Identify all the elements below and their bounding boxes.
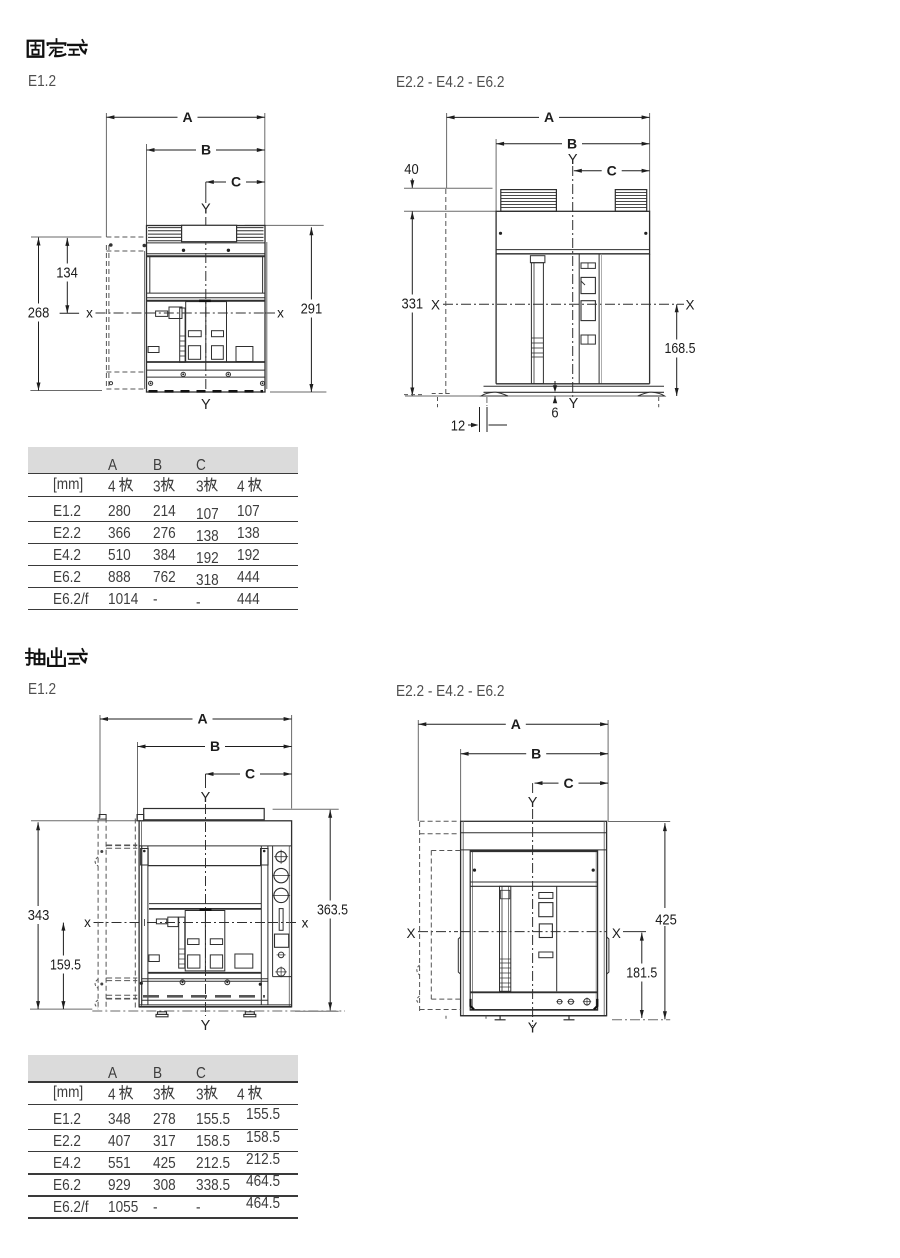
svg-text:40: 40 [404,162,418,178]
svg-text:A: A [544,109,554,125]
svg-text:x: x [86,306,93,321]
svg-text:B: B [567,136,577,152]
svg-text:C: C [245,766,255,782]
svg-text:331: 331 [402,297,424,313]
svg-text:x: x [277,306,284,321]
svg-text:C: C [563,775,573,791]
svg-text:6: 6 [551,406,558,422]
svg-text:Y: Y [568,152,578,168]
svg-text:343: 343 [28,908,50,924]
svg-text:x: x [84,915,91,930]
svg-text:A: A [511,716,521,732]
svg-text:C: C [231,174,241,190]
svg-text:B: B [201,142,211,158]
svg-text:168.5: 168.5 [665,341,696,357]
svg-text:B: B [210,738,220,754]
svg-text:B: B [531,745,541,761]
svg-text:Y: Y [201,397,211,413]
svg-text:291: 291 [301,302,323,318]
svg-text:159.5: 159.5 [50,958,81,974]
svg-text:Y: Y [201,790,211,806]
svg-text:C: C [607,163,617,179]
svg-text:x: x [302,916,309,931]
svg-text:425: 425 [655,913,677,929]
svg-text:181.5: 181.5 [626,966,657,982]
svg-text:Y: Y [528,795,538,811]
svg-text:Y: Y [528,1021,538,1037]
svg-text:268: 268 [28,306,50,322]
svg-text:X: X [612,926,621,941]
svg-text:A: A [197,711,207,727]
svg-text:X: X [431,298,440,313]
svg-text:Y: Y [201,202,211,218]
svg-text:363.5: 363.5 [317,903,348,919]
svg-text:Y: Y [569,396,579,412]
svg-text:Y: Y [201,1018,211,1034]
svg-text:X: X [685,298,694,313]
svg-text:134: 134 [56,265,78,281]
svg-text:A: A [182,109,192,125]
svg-text:X: X [406,926,415,941]
svg-text:12: 12 [451,419,465,435]
